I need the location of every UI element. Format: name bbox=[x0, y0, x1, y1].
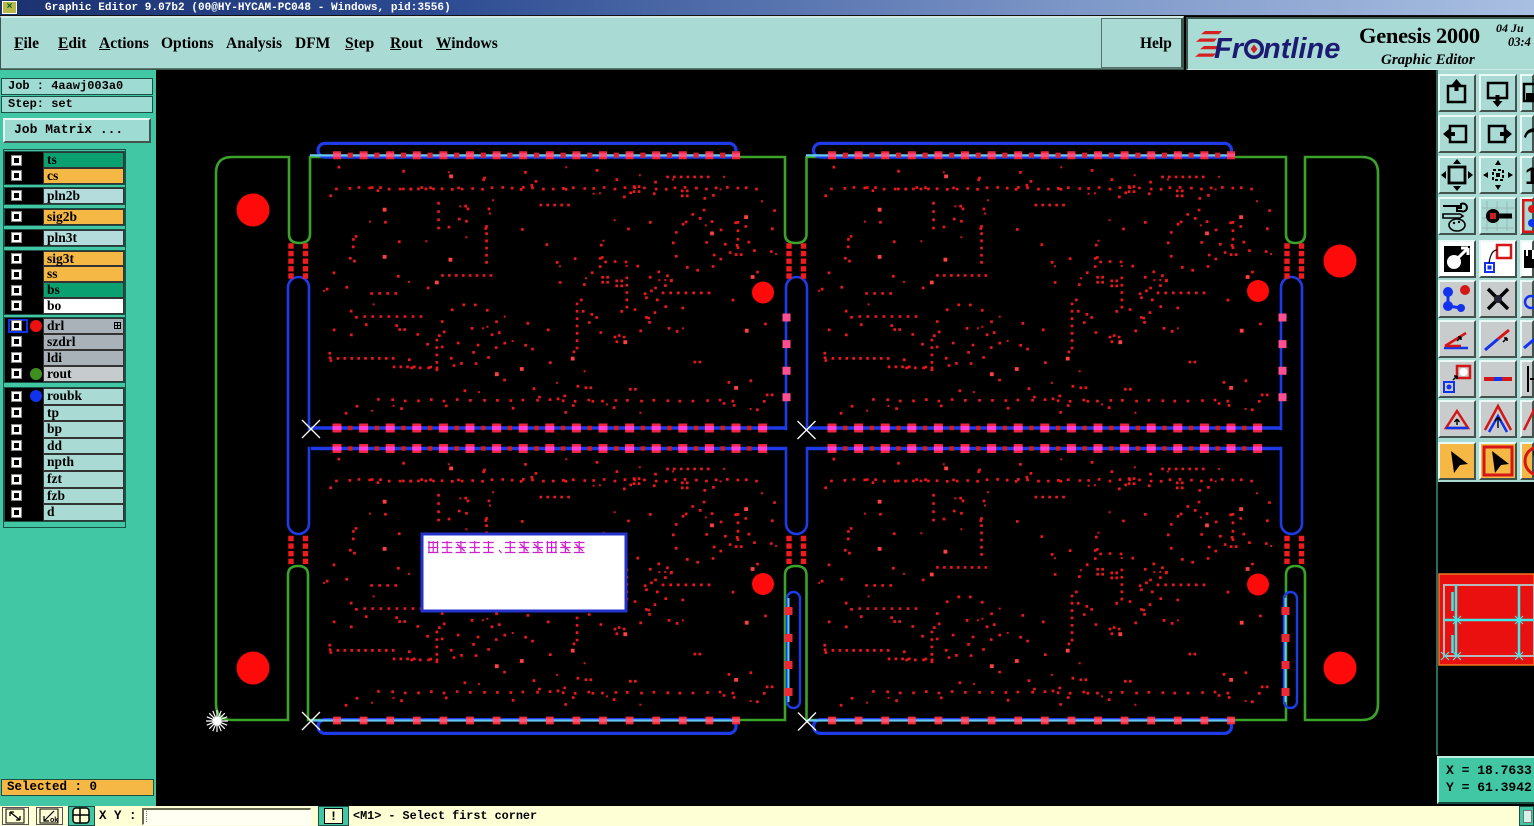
svg-text:Fr: Fr bbox=[1214, 33, 1245, 65]
svg-text:ntline: ntline bbox=[1263, 33, 1340, 65]
svg-text:1: 1 bbox=[1525, 163, 1534, 190]
svg-text:ok: ok bbox=[50, 817, 58, 824]
